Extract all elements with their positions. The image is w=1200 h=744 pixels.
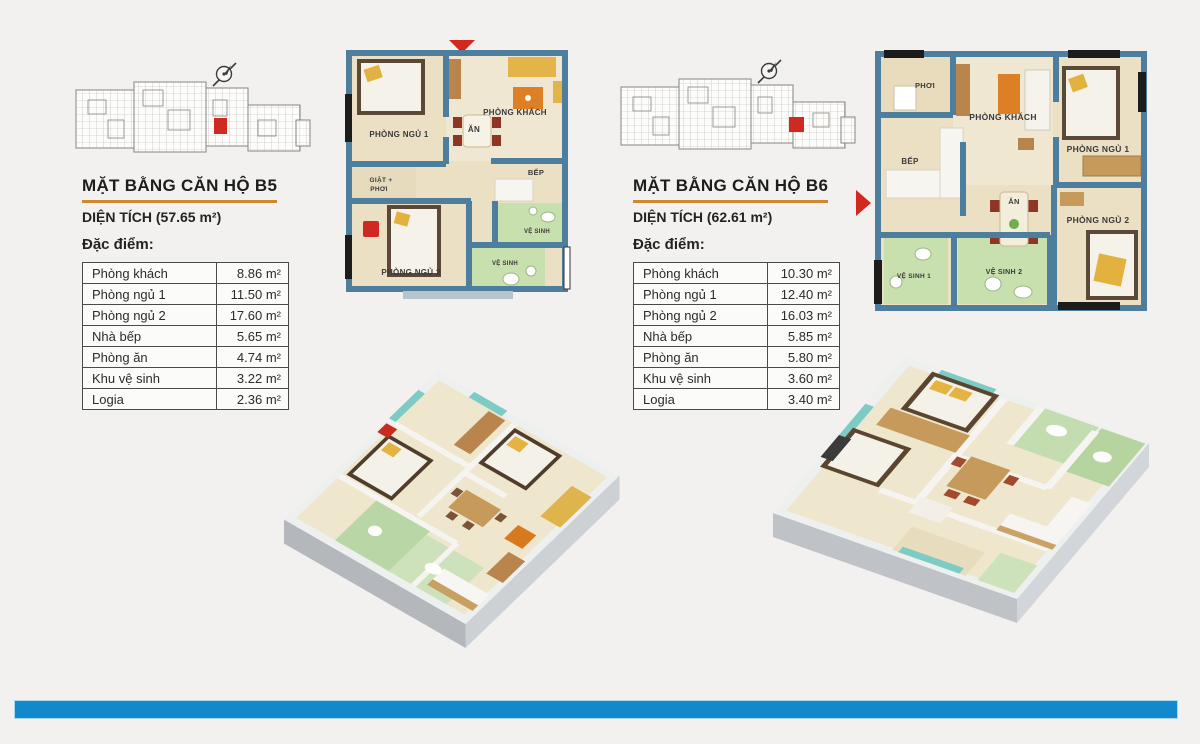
room-label-bedroom1: PHÒNG NGỦ 1: [369, 130, 429, 139]
room-label-kitchen: BẾP: [901, 156, 919, 166]
room-label-wc2: VỆ SINH 2: [986, 267, 1023, 276]
room-label-laundry: GIẶT +: [370, 175, 393, 184]
unit-b5-area: DIỆN TÍCH (57.65 m²): [82, 209, 312, 225]
room-label-drying: PHƠI: [915, 81, 935, 90]
floor-plan-2d-b5: PHÒNG NGỦ 1 PHÒNG KHÁCH ĂN BẾP GIẶT + PH…: [343, 39, 571, 303]
compass-icon: [758, 60, 781, 83]
table-row: Phòng ngủ 216.03 m²: [634, 305, 840, 326]
floor-plan-2d-b6: PHƠI PHÒNG KHÁCH BẾP ĂN PHÒNG NGỦ 1 PHÒN…: [856, 42, 1153, 324]
table-row: Phòng ngủ 217.60 m²: [83, 305, 289, 326]
compass-icon: [213, 63, 236, 86]
room-label-bedroom2: PHÒNG NGỦ 2: [1067, 214, 1130, 225]
unit-b6-area: DIỆN TÍCH (62.61 m²): [633, 209, 863, 225]
room-label-wc1: VỆ SINH: [524, 227, 550, 235]
highlighted-unit-b6: [789, 117, 804, 132]
room-label-wc1: VỆ SINH 1: [897, 271, 931, 280]
site-key-plan-b6: [613, 55, 863, 165]
table-row: Phòng ngủ 112.40 m²: [634, 284, 840, 305]
footer-accent-bar: [15, 701, 1177, 718]
room-label-bedroom2: PHÒNG NGỦ 2: [381, 268, 441, 277]
table-row: Logia2.36 m²: [83, 389, 289, 410]
room-label-bedroom1: PHÒNG NGỦ 1: [1067, 143, 1130, 154]
unit-b5-features-label: Đặc điểm:: [82, 236, 154, 253]
unit-b5-room-table: Phòng khách8.86 m² Phòng ngủ 111.50 m² P…: [82, 262, 289, 410]
unit-b6-info: MẶT BẰNG CĂN HỘ B6 DIỆN TÍCH (62.61 m²): [633, 176, 863, 225]
table-row: Phòng khách10.30 m²: [634, 263, 840, 284]
room-label-wc2: VỆ SINH: [492, 259, 518, 267]
unit-b6-title: MẶT BẰNG CĂN HỘ B6: [633, 176, 828, 203]
room-label-dining: ĂN: [468, 125, 480, 134]
site-key-plan-b5: [68, 58, 318, 168]
room-label-living: PHÒNG KHÁCH: [483, 108, 547, 117]
unit-b5-info: MẶT BẰNG CĂN HỘ B5 DIỆN TÍCH (57.65 m²): [82, 176, 312, 225]
room-label-dining: ĂN: [1008, 197, 1019, 206]
render-3d-b6: [762, 345, 1182, 695]
room-label-kitchen: BẾP: [528, 167, 544, 177]
table-row: Khu vệ sinh3.22 m²: [83, 368, 289, 389]
table-row: Phòng ngủ 111.50 m²: [83, 284, 289, 305]
room-label-living: PHÒNG KHÁCH: [969, 111, 1037, 122]
unit-b6-features-label: Đặc điểm:: [633, 236, 705, 253]
highlighted-unit-b5: [214, 118, 227, 134]
unit-b5-title: MẶT BẰNG CĂN HỘ B5: [82, 176, 277, 203]
room-label-laundry: PHƠI: [370, 186, 388, 193]
table-row: Phòng ăn4.74 m²: [83, 347, 289, 368]
render-3d-b5: [278, 356, 628, 696]
table-row: Nhà bếp5.65 m²: [83, 326, 289, 347]
table-row: Phòng khách8.86 m²: [83, 263, 289, 284]
entrance-arrow-icon: [856, 190, 871, 216]
table-row: Nhà bếp5.85 m²: [634, 326, 840, 347]
brochure-page: MẶT BẰNG CĂN HỘ B5 DIỆN TÍCH (57.65 m²) …: [0, 0, 1200, 744]
